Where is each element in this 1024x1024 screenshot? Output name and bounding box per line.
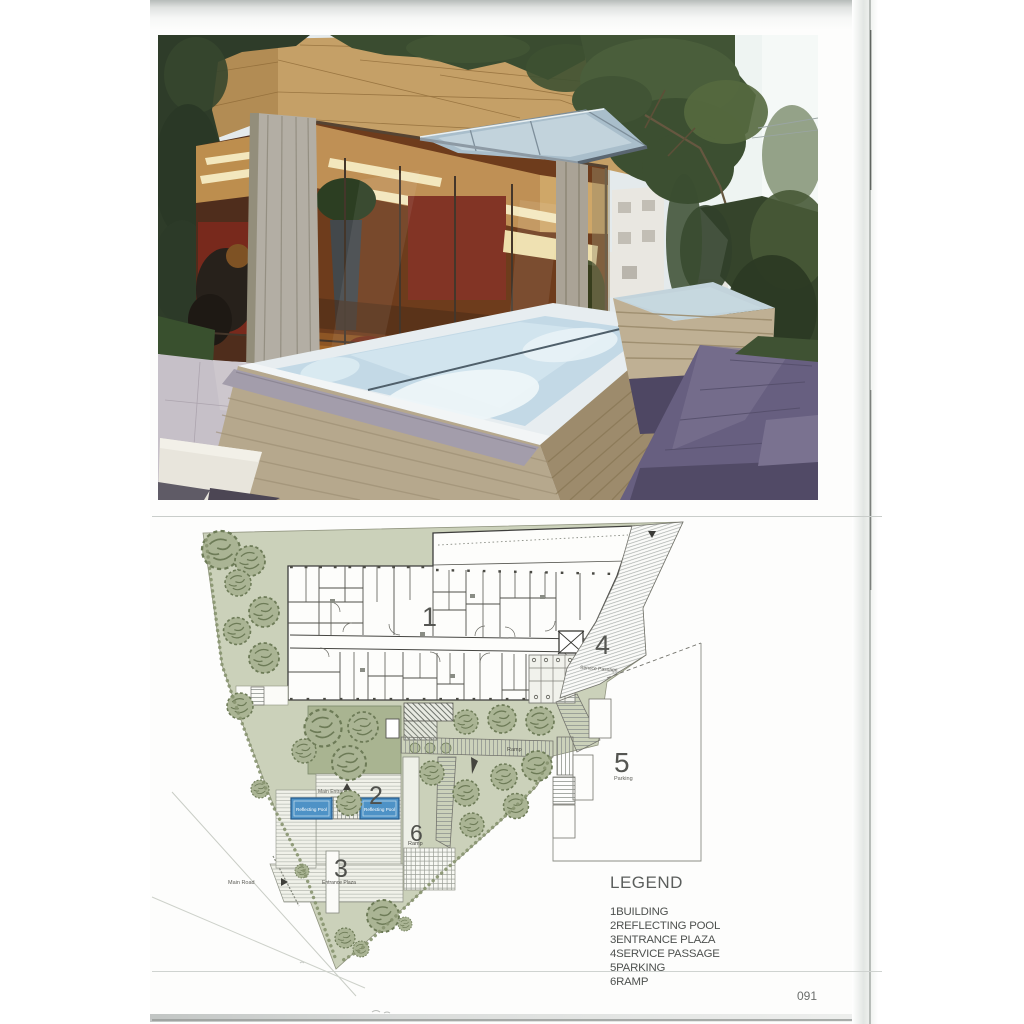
svg-text:3ENTRANCE PLAZA: 3ENTRANCE PLAZA bbox=[610, 934, 716, 946]
svg-text:2: 2 bbox=[369, 782, 383, 810]
svg-text:Entrance Plaza: Entrance Plaza bbox=[322, 880, 356, 886]
svg-text:6RAMP: 6RAMP bbox=[610, 976, 648, 988]
svg-text:5PARKING: 5PARKING bbox=[610, 962, 665, 974]
svg-text:1: 1 bbox=[422, 602, 437, 632]
svg-text:4SERVICE PASSAGE: 4SERVICE PASSAGE bbox=[610, 948, 720, 960]
svg-text:Ramp: Ramp bbox=[408, 841, 423, 847]
svg-text:3: 3 bbox=[334, 855, 348, 883]
svg-text:Main Road: Main Road bbox=[228, 880, 255, 886]
svg-text:LEGEND: LEGEND bbox=[610, 873, 683, 892]
svg-text:Ramp: Ramp bbox=[507, 747, 522, 753]
svg-text:1BUILDING: 1BUILDING bbox=[610, 906, 669, 918]
svg-text:4: 4 bbox=[595, 630, 610, 660]
svg-text:2REFLECTING POOL: 2REFLECTING POOL bbox=[610, 920, 720, 932]
svg-text:5: 5 bbox=[614, 747, 630, 778]
svg-text:Reflecting Pool: Reflecting Pool bbox=[296, 807, 327, 812]
svg-text:Parking: Parking bbox=[614, 776, 633, 782]
svg-text:091: 091 bbox=[797, 989, 817, 1003]
